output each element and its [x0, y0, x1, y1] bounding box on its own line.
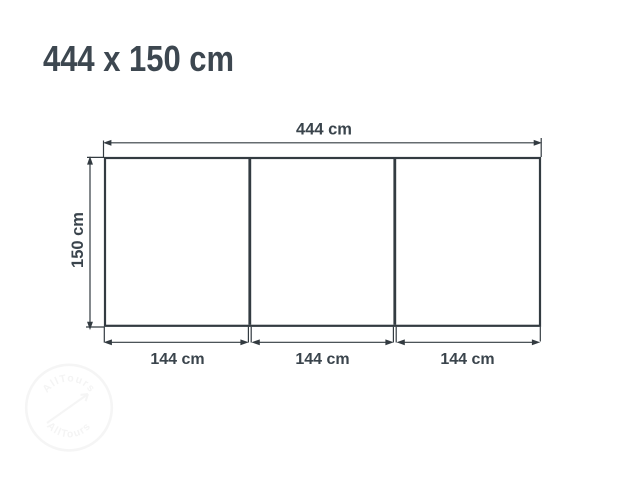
svg-text:144 cm: 144 cm — [440, 351, 494, 368]
svg-text:150 cm: 150 cm — [69, 212, 87, 268]
svg-text:144 cm: 144 cm — [295, 351, 349, 368]
svg-text:144 cm: 144 cm — [150, 351, 204, 368]
svg-text:444 cm: 444 cm — [296, 120, 352, 138]
svg-text:444 x 150 cm: 444 x 150 cm — [43, 38, 234, 79]
